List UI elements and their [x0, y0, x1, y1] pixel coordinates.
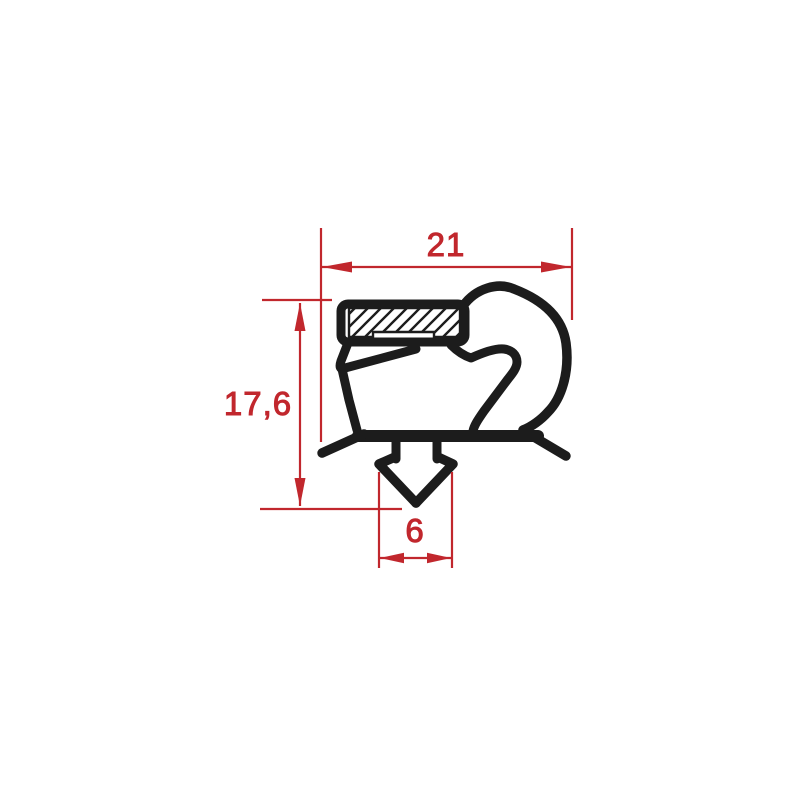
gasket-profile [322, 286, 567, 503]
dart-barb-left [379, 457, 416, 503]
bellows-fold [340, 343, 416, 369]
gasket-profile-drawing: 21 17,6 6 [0, 0, 800, 800]
drawing-canvas: 21 17,6 6 [0, 0, 800, 800]
arrowhead-up [295, 303, 306, 331]
arrowhead-right [427, 553, 451, 563]
bellows-arm [342, 369, 357, 430]
arrowhead-left [380, 553, 404, 563]
dart-barb-right [416, 457, 453, 503]
arrowhead-right [541, 262, 571, 273]
inner-web [451, 345, 517, 431]
arrowhead-left [322, 262, 352, 273]
magnet-hatch [349, 308, 460, 337]
left-whisker [322, 434, 364, 453]
arrowhead-down [295, 478, 306, 506]
dimension-label-height: 17,6 [224, 385, 292, 422]
anchor-dart [379, 441, 453, 503]
dimension-label-width: 21 [427, 226, 466, 263]
dimension-dart-width: 6 [379, 472, 452, 568]
dimension-label-dart: 6 [405, 512, 424, 549]
right-whisker [534, 437, 566, 456]
